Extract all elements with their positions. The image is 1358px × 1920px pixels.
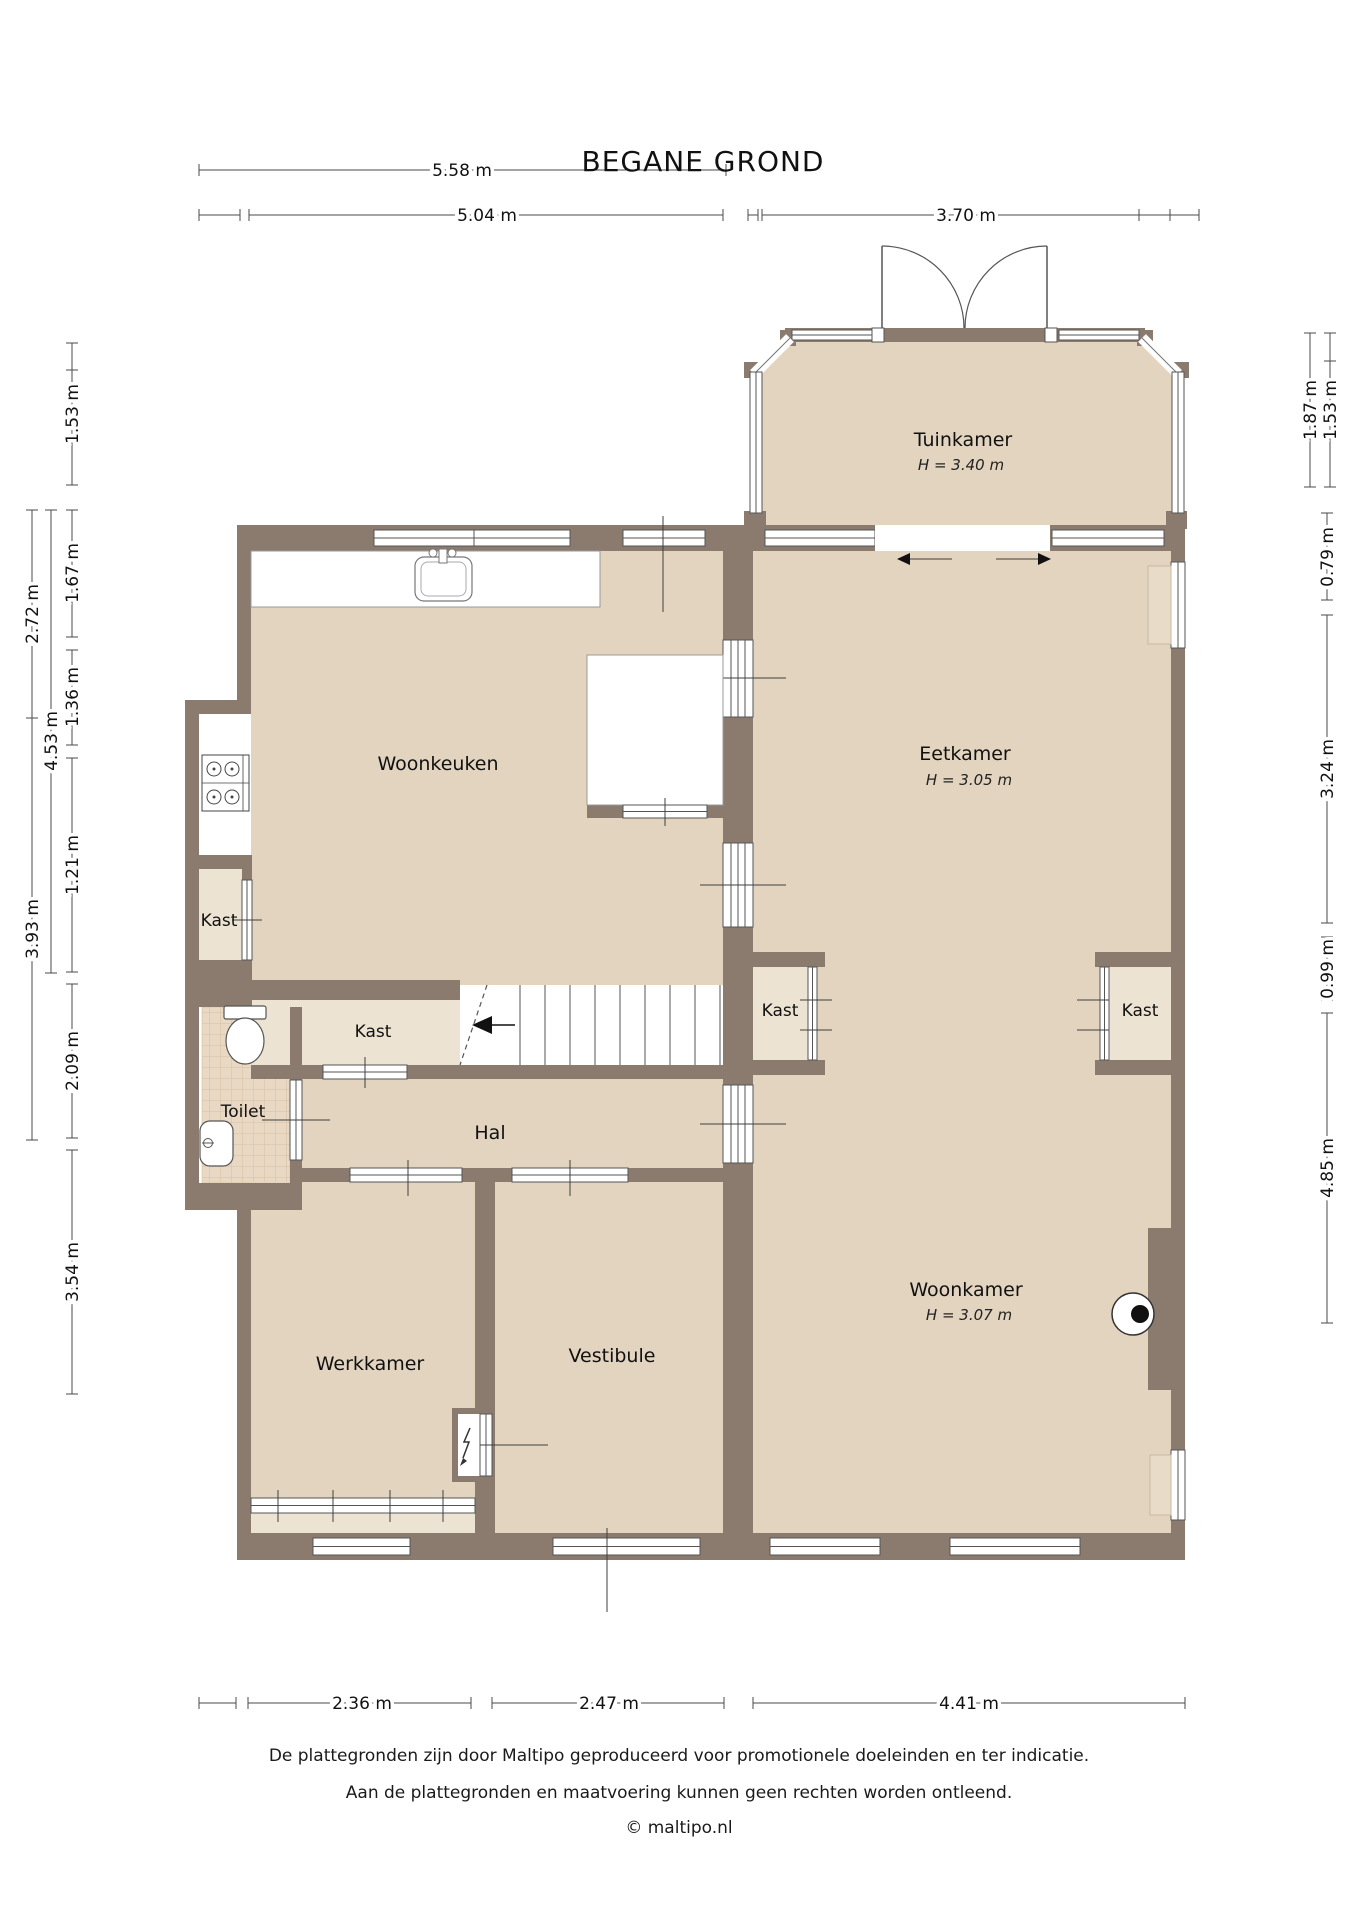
dim-left-6: 4.53 m: [42, 510, 62, 973]
double-door-icon: [882, 246, 1047, 328]
dim-top-1: 5.04 m: [199, 206, 723, 226]
floorplan-page: 5.58 m 5.04 m 3.70 m 1.53 m 1.67 m: [0, 0, 1358, 1920]
dim-bottom-2: 4.41 m: [753, 1694, 1185, 1714]
room-label-kast-2: Kast: [355, 1022, 392, 1042]
svg-text:1.53 m: 1.53 m: [63, 384, 83, 444]
room-label-hal: Hal: [474, 1122, 505, 1144]
shaft-void: [587, 655, 723, 805]
svg-text:1.21 m: 1.21 m: [63, 835, 83, 895]
room-label-werkkamer: Werkkamer: [316, 1353, 425, 1375]
svg-text:1.53 m: 1.53 m: [1321, 380, 1341, 440]
svg-text:0.99 m: 0.99 m: [1318, 939, 1338, 999]
footer-line-3: © maltipo.nl: [625, 1818, 732, 1838]
page-title: BEGANE GROND: [582, 145, 825, 178]
footer: De plattegronden zijn door Maltipo gepro…: [269, 1746, 1089, 1838]
room-label-kast-4: Kast: [1122, 1001, 1159, 1021]
svg-text:2.36 m: 2.36 m: [332, 1694, 392, 1714]
dim-right-0: 1.87 m: [1301, 333, 1321, 487]
sink-icon: [415, 549, 472, 601]
svg-text:4.53 m: 4.53 m: [42, 711, 62, 771]
room-label-toilet: Toilet: [220, 1102, 266, 1122]
werkkamer-floor: [251, 1182, 475, 1498]
sliding-door-opening: [875, 525, 1050, 551]
bay-sill: [251, 1513, 475, 1533]
svg-text:1.67 m: 1.67 m: [63, 543, 83, 603]
svg-text:0.79 m: 0.79 m: [1318, 527, 1338, 587]
room-label-woonkamer: Woonkamer: [909, 1279, 1022, 1301]
window-sill-niche-bottom: [1150, 1455, 1171, 1515]
dim-left-8: 3.93 m: [23, 718, 43, 1140]
dim-left-2: 1.36 m: [63, 650, 83, 745]
svg-text:4.85 m: 4.85 m: [1318, 1138, 1338, 1198]
svg-text:1.36 m: 1.36 m: [63, 667, 83, 727]
dim-right-3: 3.24 m: [1318, 615, 1338, 923]
dim-bottom-1: 2.47 m: [492, 1694, 724, 1714]
dim-left-1: 1.67 m: [63, 510, 83, 637]
dim-label: 5.58 m: [432, 161, 492, 181]
room-label-tuinkamer: Tuinkamer: [913, 429, 1013, 451]
svg-text:1.87 m: 1.87 m: [1301, 380, 1321, 440]
svg-text:3.93 m: 3.93 m: [23, 899, 43, 959]
svg-text:2.47 m: 2.47 m: [579, 1694, 639, 1714]
dim-left-3: 1.21 m: [63, 758, 83, 972]
wood-stove-icon: [1112, 1293, 1154, 1335]
dim-right-5: 4.85 m: [1318, 1013, 1338, 1323]
toilet-icon: [224, 1006, 266, 1064]
room-height-eetkamer: H = 3.05 m: [926, 771, 1012, 789]
basin-icon: [200, 1121, 233, 1166]
dim-left-4: 2.09 m: [63, 984, 83, 1138]
footer-line-1: De plattegronden zijn door Maltipo gepro…: [269, 1746, 1089, 1766]
footer-line-2: Aan de plattegronden en maatvoering kunn…: [346, 1783, 1012, 1803]
dim-right-4: 0.99 m: [1318, 937, 1338, 1000]
dim-left-7: 2.72 m: [23, 510, 43, 718]
dim-left-0: 1.53 m: [63, 343, 83, 485]
room-height-woonkamer: H = 3.07 m: [926, 1306, 1012, 1324]
svg-text:4.41 m: 4.41 m: [939, 1694, 999, 1714]
dim-label: 5.04 m: [457, 206, 517, 226]
hal-floor: [302, 1079, 723, 1168]
room-label-woonkeuken: Woonkeuken: [377, 753, 498, 775]
room-label-kast-3: Kast: [762, 1001, 799, 1021]
svg-text:3.24 m: 3.24 m: [1318, 739, 1338, 799]
room-height-tuinkamer: H = 3.40 m: [918, 456, 1004, 474]
dim-right-1: 1.53 m: [1321, 333, 1341, 487]
svg-text:2.72 m: 2.72 m: [23, 584, 43, 644]
dim-top-2: 3.70 m: [748, 206, 1199, 226]
floorplan-canvas: 5.58 m 5.04 m 3.70 m 1.53 m 1.67 m: [0, 0, 1358, 1920]
svg-text:2.09 m: 2.09 m: [63, 1031, 83, 1091]
dim-right-2: 0.79 m: [1318, 513, 1338, 600]
room-label-eetkamer: Eetkamer: [919, 743, 1011, 765]
room-label-kast-1: Kast: [201, 911, 238, 931]
dim-bottom-0: 2.36 m: [199, 1694, 471, 1714]
room-label-vestibule: Vestibule: [569, 1345, 656, 1367]
dim-label: 3.70 m: [936, 206, 996, 226]
svg-text:3.54 m: 3.54 m: [63, 1242, 83, 1302]
window-sill-niche-top: [1148, 566, 1171, 644]
stove-icon: [202, 755, 249, 811]
dim-left-5: 3.54 m: [63, 1150, 83, 1394]
